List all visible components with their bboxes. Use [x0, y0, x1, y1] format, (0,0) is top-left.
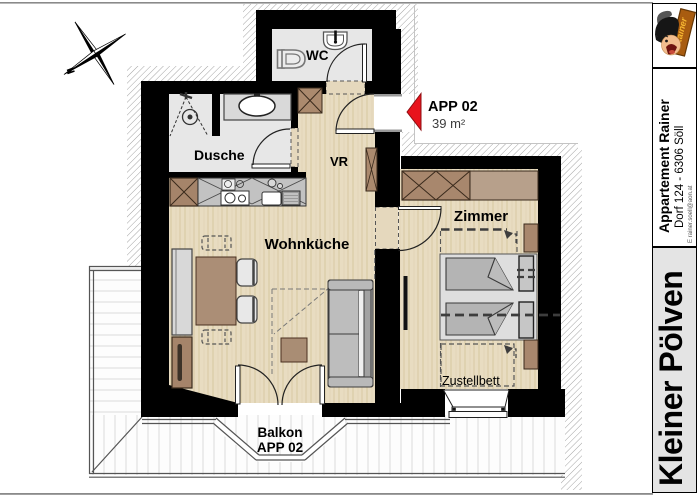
svg-text:Zustellbett: Zustellbett [442, 374, 500, 388]
svg-text:Zimmer: Zimmer [454, 208, 508, 225]
svg-text:Wohnküche: Wohnküche [265, 236, 350, 253]
svg-text:39 m²: 39 m² [432, 116, 466, 131]
svg-text:Dusche: Dusche [194, 147, 245, 163]
svg-text:VR: VR [330, 154, 349, 169]
svg-text:APP 02: APP 02 [257, 440, 303, 455]
svg-text:APP 02: APP 02 [428, 99, 478, 115]
svg-text:WC: WC [306, 48, 329, 63]
svg-text:Balkon: Balkon [257, 425, 302, 440]
